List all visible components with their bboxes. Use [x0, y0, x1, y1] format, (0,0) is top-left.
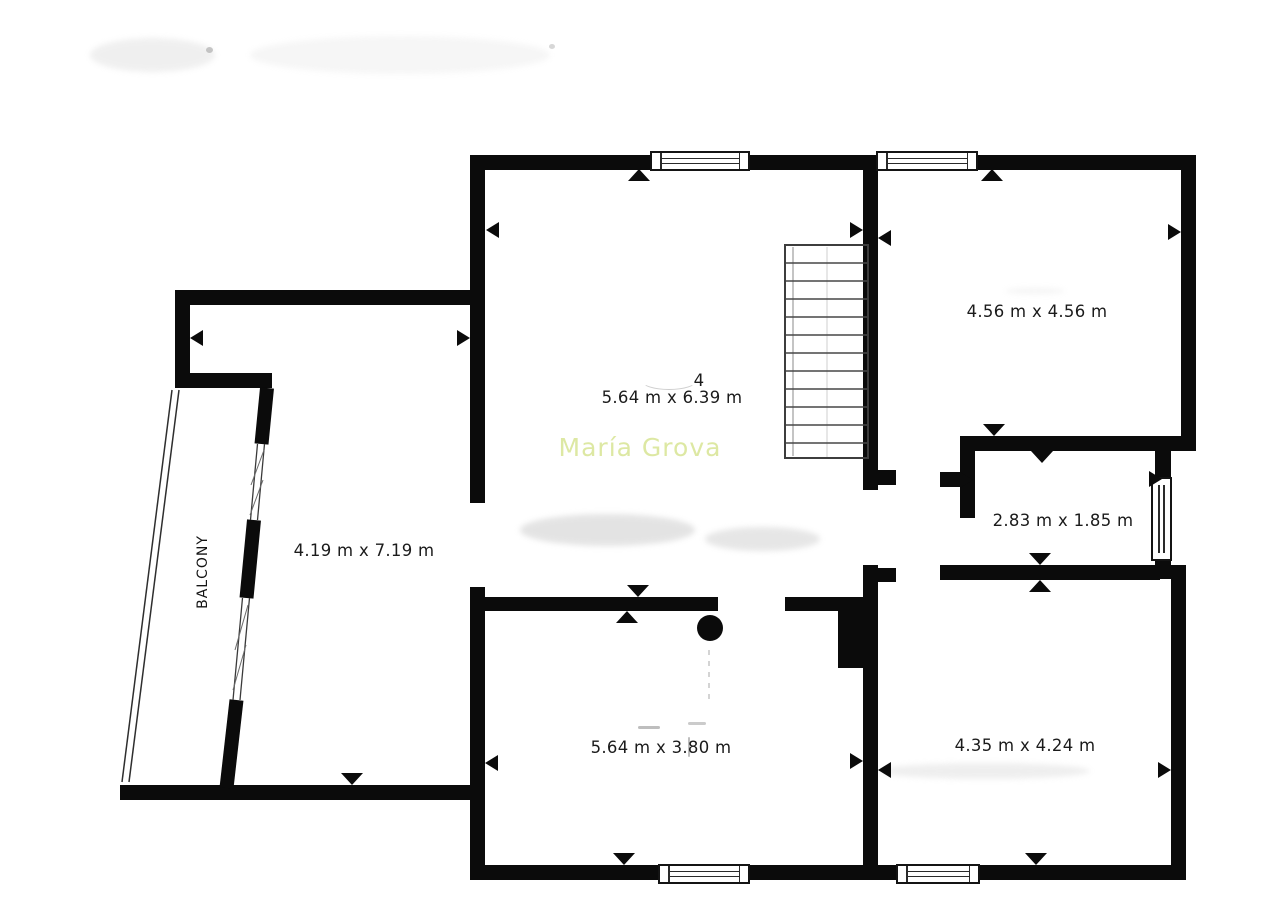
opening-marker — [628, 169, 650, 181]
main-room-dims: 5.64 m x 6.39 m — [602, 388, 743, 407]
opening-marker — [627, 585, 649, 597]
opening-marker — [981, 169, 1003, 181]
opening-marker — [960, 472, 973, 488]
smudge — [705, 527, 820, 551]
wall-left-lower — [470, 587, 485, 880]
stairs — [780, 240, 875, 465]
opening-marker — [341, 773, 363, 785]
window — [1151, 477, 1172, 561]
smudge — [1005, 288, 1065, 294]
balcony-railing — [95, 360, 285, 805]
opening-marker — [1029, 580, 1051, 592]
wall-right-upper — [1181, 155, 1196, 451]
floor-plan: 4 5.64 m x 6.39 m María Grova 4.56 m x 4… — [0, 0, 1280, 908]
left-room-dims: 4.19 m x 7.19 m — [294, 541, 435, 560]
opening-marker — [850, 753, 863, 769]
opening-marker — [457, 330, 470, 346]
wall-leftwing-top — [175, 290, 470, 305]
wall-top — [470, 155, 1196, 170]
balcony-label: BALCONY — [195, 535, 211, 609]
opening-marker — [1025, 853, 1047, 865]
small-room-dims: 2.83 m x 1.85 m — [993, 511, 1134, 530]
wall-bottomcenter-top-left — [480, 597, 718, 611]
opening-marker — [1149, 471, 1162, 487]
bottom-center-room-dims: 5.64 m x 3.80 m — [591, 738, 732, 757]
smudge — [688, 722, 706, 725]
opening-marker — [1168, 224, 1181, 240]
opening-marker — [878, 230, 891, 246]
smudge — [520, 514, 695, 546]
wall-small-room-bottom — [940, 565, 1160, 580]
watermark: María Grova — [559, 433, 722, 462]
opening-marker — [1029, 553, 1051, 565]
window — [896, 864, 980, 884]
opening-marker — [613, 853, 635, 865]
opening-marker — [983, 424, 1005, 436]
top-right-room-dims: 4.56 m x 4.56 m — [967, 302, 1108, 321]
smudge — [206, 47, 213, 53]
wall-left-upper — [470, 155, 485, 503]
column — [697, 615, 723, 641]
wall-small-room-stub — [940, 472, 960, 487]
opening-marker — [341, 293, 363, 305]
opening-marker — [190, 330, 203, 346]
wall-right-lower — [1171, 565, 1186, 880]
opening-marker — [616, 611, 638, 623]
window — [876, 151, 978, 171]
opening-marker — [850, 222, 863, 238]
window — [650, 151, 750, 171]
smudge — [90, 38, 215, 72]
opening-marker — [486, 222, 499, 238]
bottom-right-room-dims: 4.35 m x 4.24 m — [955, 736, 1096, 755]
guide-line — [708, 650, 710, 705]
smudge — [250, 36, 550, 74]
opening-marker — [485, 755, 498, 771]
smudge — [880, 763, 1090, 779]
smudge — [549, 44, 555, 49]
window — [658, 864, 750, 884]
opening-marker — [1158, 762, 1171, 778]
wall-center-stub-a — [878, 470, 896, 485]
smudge — [638, 726, 660, 729]
chimney — [838, 607, 868, 668]
wall-bottom — [470, 865, 1186, 880]
opening-marker — [878, 762, 891, 778]
wall-small-room-top — [960, 436, 1196, 451]
wall-center-stub-b — [878, 568, 896, 582]
opening-marker — [1031, 451, 1053, 463]
